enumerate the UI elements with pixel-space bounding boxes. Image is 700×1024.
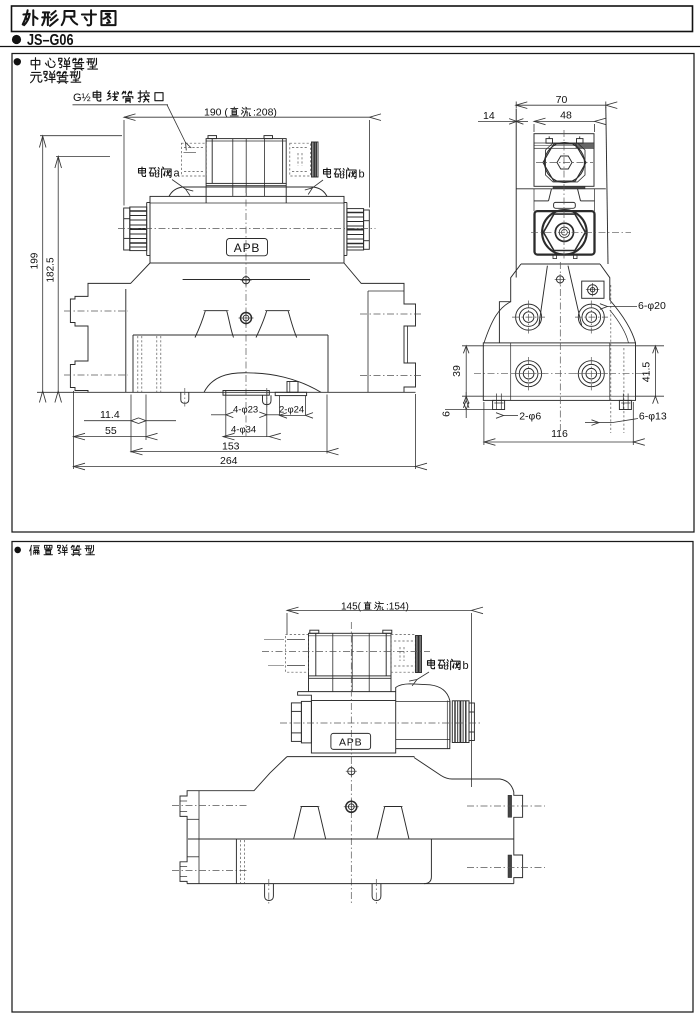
svg-text:70: 70 <box>556 94 568 106</box>
svg-text:6-φ20: 6-φ20 <box>638 300 666 312</box>
svg-text::208): :208) <box>253 107 277 119</box>
svg-text:153: 153 <box>222 441 240 453</box>
svg-text:55: 55 <box>105 425 117 437</box>
svg-text:182.5: 182.5 <box>46 257 57 282</box>
svg-text:6-φ13: 6-φ13 <box>639 411 667 423</box>
svg-text:b: b <box>463 660 469 672</box>
svg-text:APB: APB <box>339 736 362 748</box>
svg-text:116: 116 <box>551 428 568 440</box>
svg-text:G½: G½ <box>73 92 91 104</box>
svg-text:APB: APB <box>234 241 260 255</box>
svg-text:2-φ6: 2-φ6 <box>519 411 541 423</box>
svg-text:41.5: 41.5 <box>641 362 653 383</box>
svg-text:11.4: 11.4 <box>100 409 120 421</box>
svg-text:190 (: 190 ( <box>204 107 228 119</box>
svg-text:4-φ23: 4-φ23 <box>233 405 258 416</box>
svg-text:4-φ34: 4-φ34 <box>231 425 256 436</box>
svg-text:6: 6 <box>441 411 453 417</box>
svg-text:a: a <box>174 168 181 180</box>
svg-text:264: 264 <box>220 455 238 467</box>
svg-text:2-φ24: 2-φ24 <box>279 405 304 416</box>
svg-text:39: 39 <box>451 365 463 377</box>
svg-text:48: 48 <box>560 110 572 122</box>
svg-text:145(: 145( <box>341 602 362 613</box>
svg-text:199: 199 <box>30 252 41 269</box>
svg-text:b: b <box>359 169 365 181</box>
svg-text:14: 14 <box>483 110 495 122</box>
svg-text::154): :154) <box>386 602 409 613</box>
